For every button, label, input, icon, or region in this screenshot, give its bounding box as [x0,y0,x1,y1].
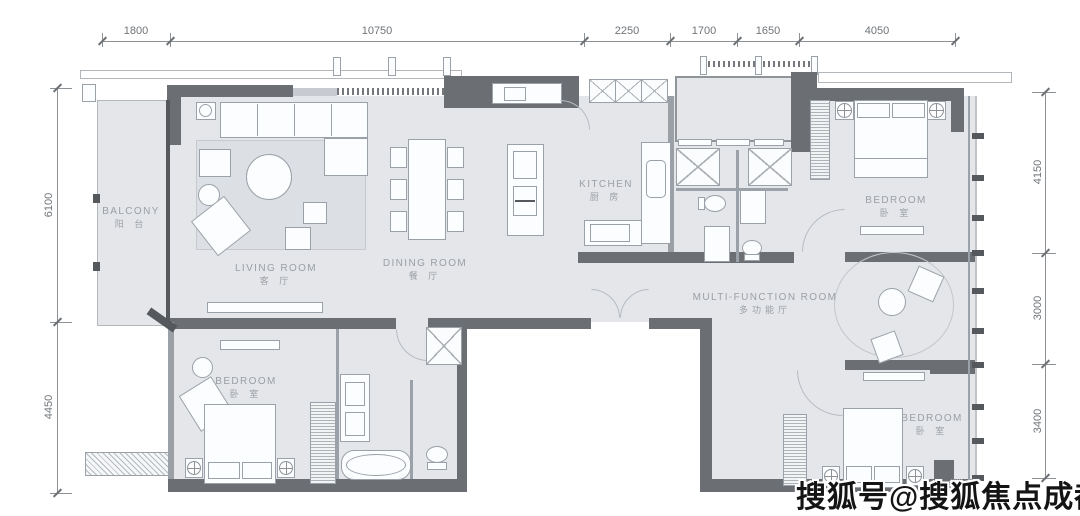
sofa-seam [294,104,295,136]
sliding-door [716,139,750,146]
sliding-door [754,139,784,146]
label-bedroom-bl-en: BEDROOM [215,375,276,388]
cabinet-icon [641,79,668,103]
console-table [863,372,925,381]
island-sink [513,151,537,179]
coffee-table [246,154,292,200]
column [443,57,451,76]
label-dining-room: DINING ROOM 餐 厅 [383,257,467,283]
stool [285,227,311,250]
stool [303,202,327,224]
closet-icon [676,148,720,186]
lamp-icon [929,103,944,118]
dim-top-2250: 2250 [615,25,639,37]
sofa-chaise [324,138,368,176]
side-table [192,357,213,378]
partition [676,188,788,191]
closet-icon [748,148,792,186]
sliding-door [678,139,712,146]
pillow [242,462,272,479]
mullion [93,194,100,203]
vanity [704,226,730,262]
shower [426,327,462,365]
label-bedroom-br-zh: 卧 室 [901,425,962,438]
toilet-tank [427,462,447,470]
mullion [972,362,984,368]
label-kitchen: KITCHEN 厨 房 [579,178,633,204]
label-bedroom-tr-zh: 卧 室 [865,207,926,220]
curtain-wall [968,96,970,490]
column [333,57,341,76]
blanket-line [855,158,927,159]
dining-chair [447,147,464,168]
wall-segment [951,88,964,132]
wall-segment [467,318,591,329]
lamp-icon [279,461,293,475]
bathtub-basin [346,454,406,476]
dim-top-1650: 1650 [756,25,780,37]
window-band [337,88,444,95]
label-dining-zh: 餐 厅 [383,270,467,283]
dim-right-4150: 4150 [1032,160,1044,184]
dining-table [408,139,446,240]
dining-chair [390,147,407,168]
eave-line-top-right [818,72,1012,83]
label-multi-function-room: MULTI-FUNCTION ROOM 多功能厅 [693,291,838,317]
cabinet-icon [615,79,642,103]
mullion [972,215,984,221]
bed-bench [860,226,924,235]
label-balcony-zh: 阳 台 [102,218,160,231]
label-dining-en: DINING ROOM [383,257,467,270]
pillow [208,462,240,479]
dim-top-1700: 1700 [692,25,716,37]
wardrobe [310,402,336,484]
dim-top-10750: 10750 [362,25,393,37]
label-bedroom-tr-en: BEDROOM [865,194,926,207]
wall-segment [167,85,293,97]
plant-icon [199,104,212,117]
console-table [220,340,280,350]
eave-line-top [80,70,462,79]
sink-icon [504,87,526,101]
toilet-icon [426,446,448,463]
round-table [878,288,906,316]
cabinet-icon [589,79,616,103]
dim-top-1800: 1800 [124,25,148,37]
dim-left-6100: 6100 [43,193,55,217]
balcony-glass-wall [166,100,170,322]
label-mfr-zh: 多功能厅 [693,304,838,317]
label-balcony-en: BALCONY [102,205,160,218]
label-kitchen-zh: 厨 房 [579,191,633,204]
lamp-icon [187,461,201,475]
pillow [892,103,925,118]
foyer-outline [675,76,793,142]
column [82,84,96,102]
cooktop-line [515,200,535,202]
label-living-zh: 客 厅 [235,275,317,288]
cooktop-icon [590,224,630,242]
sink-icon [345,412,365,436]
armchair [199,149,231,177]
mullion [972,288,984,294]
watermark: 搜狐号@搜狐焦点成都站 [796,472,1080,516]
dim-right-3400: 3400 [1032,409,1044,433]
dining-chair [447,179,464,200]
wall-segment [168,318,396,329]
sofa-seam [257,104,258,136]
column [755,56,762,75]
kitchen-sink [646,160,666,198]
mullion [972,438,984,444]
column [700,56,707,75]
dining-chair [390,179,407,200]
label-living-en: LIVING ROOM [235,262,317,275]
wardrobe [810,100,830,180]
label-bedroom-bl-zh: 卧 室 [215,388,276,401]
column [388,57,396,76]
label-bedroom-top-right: BEDROOM 卧 室 [865,194,926,220]
partition [736,150,739,262]
sink-icon [345,382,365,406]
mullion [972,133,984,139]
wall-segment [293,88,337,96]
mullion [972,250,984,256]
vanity [740,190,766,224]
label-bedroom-bottom-right: BEDROOM 卧 室 [901,412,962,438]
tv-console [207,302,323,313]
mullion [93,262,100,271]
toilet-tank [698,197,705,210]
label-bedroom-br-en: BEDROOM [901,412,962,425]
label-balcony: BALCONY 阳 台 [102,205,160,231]
vent-band [763,61,811,67]
sofa-seam [331,104,332,136]
vent-band [708,61,755,67]
floor-plan: 1800 10750 2250 1700 1650 4050 6100 4450… [0,0,1080,516]
toilet-icon [704,195,726,212]
mullion [972,175,984,181]
label-bedroom-bottom-left: BEDROOM 卧 室 [215,375,276,401]
dining-chair [390,211,407,232]
mullion [972,404,984,410]
label-kitchen-en: KITCHEN [579,178,633,191]
dim-left-4450: 4450 [43,395,55,419]
kitchen-counter-top [492,83,562,104]
dim-right-3000: 3000 [1032,296,1044,320]
ac-platform [85,452,169,476]
label-mfr-en: MULTI-FUNCTION ROOM [693,291,838,304]
toilet-tank [744,254,760,261]
wall-segment [700,318,712,490]
dining-chair [447,211,464,232]
mullion [972,328,984,334]
wall-segment [578,252,794,263]
dim-top-4050: 4050 [865,25,889,37]
lamp-icon [837,103,852,118]
partition [336,329,339,479]
pillow [857,103,890,118]
label-living-room: LIVING ROOM 客 厅 [235,262,317,288]
